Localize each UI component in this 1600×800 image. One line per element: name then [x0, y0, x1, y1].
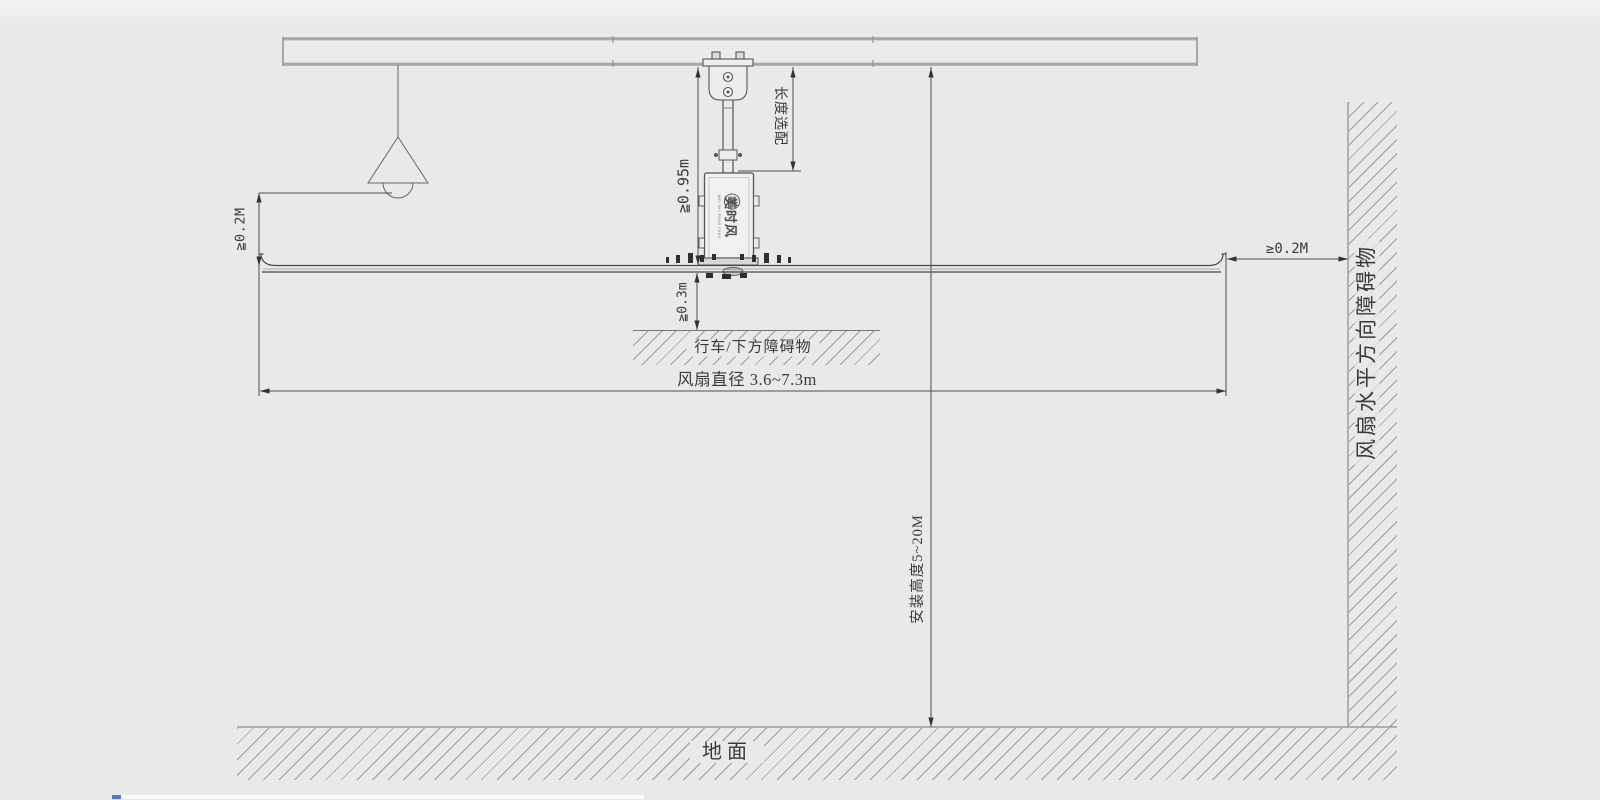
hanger-min-height-label: ≧0.95m — [677, 159, 692, 213]
left-clearance-label: ≧0.2M — [234, 207, 248, 250]
bottom-edge-accent — [112, 795, 121, 799]
lower-obstacle-label: 行车/下方障碍物 — [686, 340, 819, 357]
brand-subtext: MEI SHI FENG FANS — [717, 195, 722, 239]
drop-rod-length-label: 长度选配 — [772, 86, 786, 146]
drop-rod — [714, 100, 742, 173]
dimension-arrows — [256, 68, 1348, 727]
right-clearance-label: ≥0.2M — [1266, 242, 1308, 256]
bottom-edge-strip — [112, 795, 644, 799]
right-winglet — [1210, 254, 1223, 266]
install-height-label: 安装高度5~20M — [911, 514, 926, 624]
fan-diameter-label: 风扇直径 3.6~7.3m — [667, 371, 827, 390]
left-winglet — [261, 254, 274, 266]
hanger-bracket — [703, 52, 753, 100]
installation-diagram: 美时风 MEI SHI FENG FANS ≧0.2M ≧0.95m 长度选配 … — [0, 0, 1600, 800]
dimension-lines — [259, 67, 1348, 727]
fan-swirl-icon — [723, 193, 741, 211]
hanging-lamp — [368, 65, 428, 198]
side-obstacle-label: 风扇水平方向障碍物 — [1355, 239, 1380, 465]
blade-to-obstacle-label: ≧0.3m — [677, 282, 690, 321]
motor-brand-logo: 美时风 MEI SHI FENG FANS — [717, 193, 741, 242]
ground-label: 地面 — [690, 741, 764, 763]
